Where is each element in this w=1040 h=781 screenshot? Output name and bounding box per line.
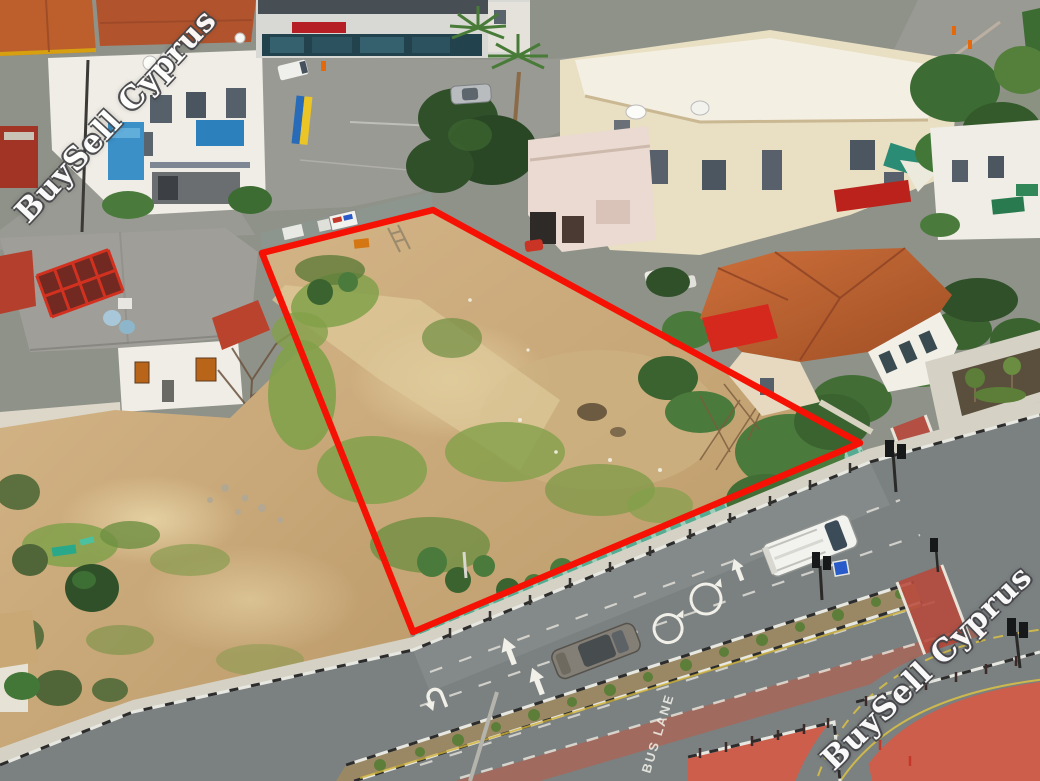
green-awning [1016,184,1038,196]
parked-red-car [524,239,543,252]
aerial-photo: BUS LANE [0,0,1040,781]
traffic-cone [321,61,326,71]
shops-building [256,0,530,58]
traffic-cone [952,26,956,35]
silver-car [450,84,491,105]
orange-cart [354,238,370,249]
white-house-topright [920,120,1040,240]
red-gable-roof [0,250,36,314]
aerial-scene: BUS LANE [0,0,1040,781]
blue-balcony [196,120,244,146]
blue-sign [833,560,849,576]
white-house-shutters [118,340,243,412]
traffic-cone [968,40,972,49]
round-tree [65,564,119,612]
burnt-spot [577,403,607,421]
